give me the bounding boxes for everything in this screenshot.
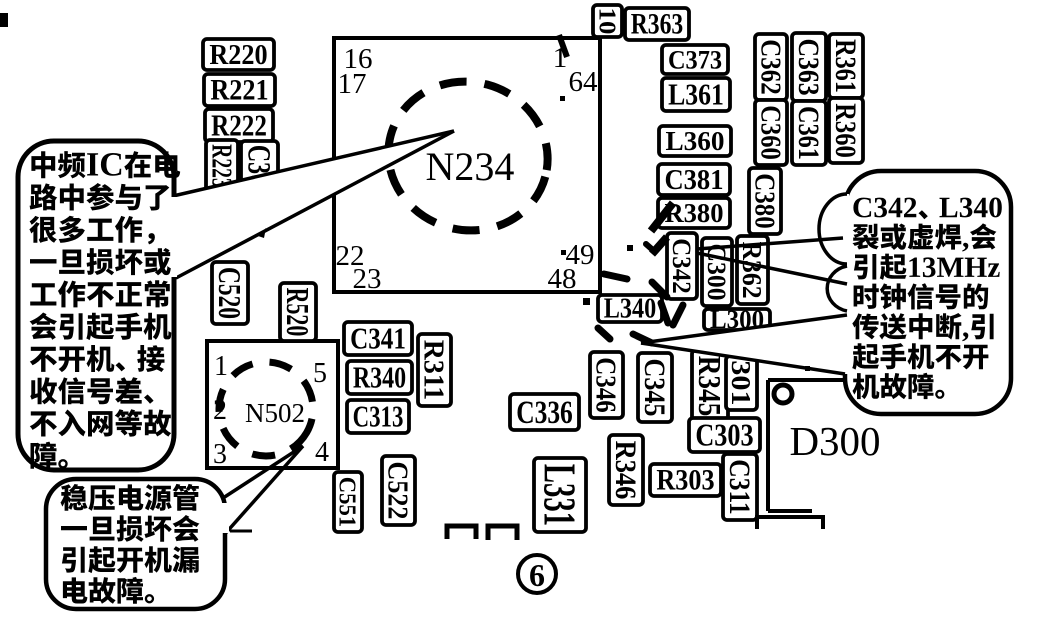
svg-text:C342: C342 <box>667 238 697 293</box>
svg-text:R303: R303 <box>656 465 714 497</box>
svg-text:C363: C363 <box>792 38 825 95</box>
svg-text:R340: R340 <box>353 361 406 395</box>
svg-text:L331: L331 <box>534 464 585 526</box>
svg-text:D300: D300 <box>789 418 880 464</box>
svg-text:C346: C346 <box>590 357 622 412</box>
svg-text:R520: R520 <box>280 288 315 337</box>
svg-text:R380: R380 <box>664 197 723 228</box>
svg-text:4: 4 <box>315 437 329 468</box>
svg-text:C311: C311 <box>723 459 756 514</box>
svg-text:C362: C362 <box>754 39 785 94</box>
svg-text:N502: N502 <box>245 398 305 428</box>
svg-text:C345: C345 <box>638 359 671 417</box>
svg-text:R221: R221 <box>210 75 268 107</box>
svg-text:L360: L360 <box>665 125 724 156</box>
svg-text:C341: C341 <box>350 322 406 356</box>
svg-text:C373: C373 <box>668 44 722 74</box>
svg-text:64: 64 <box>569 66 599 98</box>
svg-text:C336: C336 <box>516 394 573 431</box>
svg-text:6: 6 <box>529 557 545 593</box>
svg-text:R361: R361 <box>829 39 862 93</box>
svg-text:C313: C313 <box>353 400 404 434</box>
svg-text:R363: R363 <box>631 9 683 41</box>
svg-text:C360: C360 <box>754 105 785 160</box>
svg-text:1: 1 <box>214 351 228 382</box>
svg-text:C303: C303 <box>695 417 753 452</box>
svg-text:R222: R222 <box>211 109 267 143</box>
svg-text:R360: R360 <box>829 103 862 158</box>
svg-text:2: 2 <box>213 395 227 426</box>
svg-text:R345: R345 <box>692 356 727 416</box>
svg-text:48: 48 <box>548 263 577 295</box>
svg-text:5: 5 <box>313 358 327 389</box>
svg-text:N234: N234 <box>426 144 515 189</box>
svg-text:R220: R220 <box>209 40 267 71</box>
svg-text:C361: C361 <box>792 106 825 160</box>
svg-text:301: 301 <box>726 360 756 405</box>
svg-text:17: 17 <box>338 68 367 100</box>
svg-text:C551: C551 <box>334 477 361 527</box>
svg-text:R362: R362 <box>737 241 767 298</box>
svg-text:C381: C381 <box>664 165 723 196</box>
svg-text:C300: C300 <box>702 243 732 300</box>
svg-text:3: 3 <box>213 439 227 470</box>
svg-text:23: 23 <box>353 263 382 295</box>
svg-text:R346: R346 <box>609 441 642 500</box>
svg-text:L361: L361 <box>668 78 724 112</box>
svg-text:R311: R311 <box>418 340 450 400</box>
svg-text:C522: C522 <box>382 462 414 520</box>
svg-text:C380: C380 <box>748 173 779 228</box>
svg-text:C520: C520 <box>212 267 247 319</box>
svg-text:10: 10 <box>593 8 619 35</box>
svg-text:L340: L340 <box>604 294 656 325</box>
